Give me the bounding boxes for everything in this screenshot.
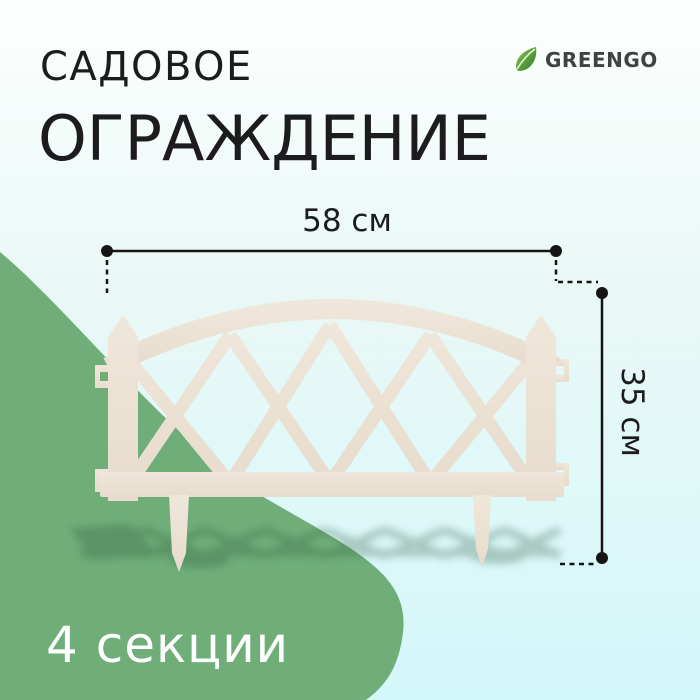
height-dimension-label: 35 см [614,367,650,457]
product-card: САДОВОЕ ОГРАЖДЕНИЕ GREENGO 58 см 35 см 4… [0,0,700,700]
width-dimension-line [101,245,598,293]
title-line-2: ОГРАЖДЕНИЕ [38,102,491,175]
brand-logo: GREENGO [512,44,658,76]
width-dimension-label: 58 см [247,203,447,239]
height-dimension-line [560,287,608,564]
title-line-1: САДОВОЕ [40,44,253,90]
sections-badge: 4 секции [46,616,289,674]
brand-name: GREENGO [545,48,658,72]
leaf-icon [512,44,544,76]
